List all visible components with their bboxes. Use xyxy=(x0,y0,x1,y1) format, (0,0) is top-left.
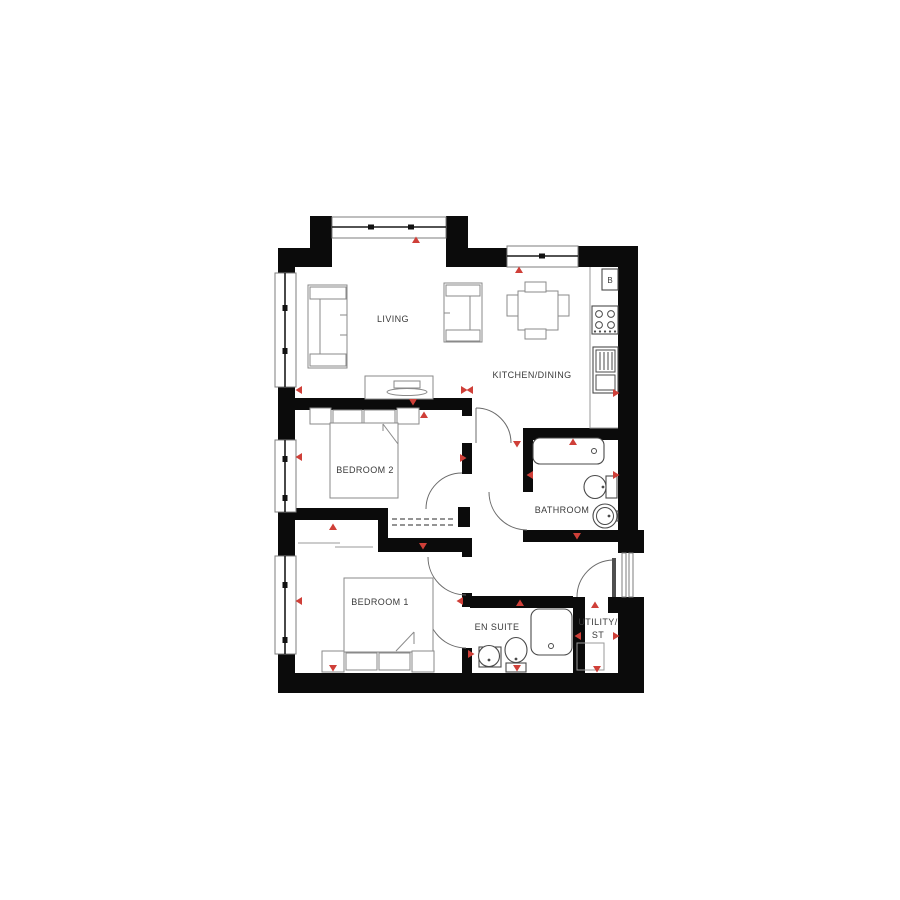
floor-plan-page: LIVING B xyxy=(0,0,900,900)
utility-label-line2: ST xyxy=(592,630,604,640)
bedroom2-window xyxy=(275,440,296,512)
room-bathroom: BATHROOM xyxy=(533,438,618,528)
ensuite-label: EN SUITE xyxy=(475,622,520,632)
bedroom1-label: BEDROOM 1 xyxy=(351,597,409,607)
bath-icon xyxy=(533,438,604,464)
kitchen-sink-icon xyxy=(593,347,618,393)
bedroom2-label: BEDROOM 2 xyxy=(336,465,394,475)
kitchen-hall-door-swing xyxy=(476,408,511,443)
wardrobe-sliding-doors xyxy=(298,543,373,547)
hob-icon xyxy=(592,306,618,334)
dimension-marker-icon xyxy=(593,666,601,673)
dimension-marker-icon xyxy=(461,386,468,394)
bedroom2-door-swing xyxy=(426,473,462,509)
boiler-label: B xyxy=(607,276,612,285)
shower-icon xyxy=(531,609,572,655)
tv-unit xyxy=(365,376,433,399)
floor-plan: LIVING B xyxy=(0,0,900,900)
basin-icon xyxy=(593,504,618,528)
dimension-marker-icon xyxy=(329,524,337,531)
entrance-door-frame xyxy=(622,553,626,597)
living-side-window xyxy=(275,273,296,387)
bathroom-door-swing xyxy=(489,492,527,530)
entrance-door-swing xyxy=(577,560,613,597)
dimension-marker-icon xyxy=(591,602,599,609)
dimension-marker-icon xyxy=(420,412,428,419)
utility-label-line1: UTILITY/ xyxy=(578,617,617,627)
bedroom1-window xyxy=(275,556,296,654)
dining-table-4-chairs xyxy=(507,282,569,339)
room-ensuite: EN SUITE xyxy=(475,609,572,672)
dimension-marker-icon xyxy=(457,597,464,605)
sofa-3-seat xyxy=(308,285,347,368)
room-kitchen-dining: B KITCHEN/DINING xyxy=(492,267,618,428)
ensuite-door-swing xyxy=(428,610,466,648)
entrance-door-leaf xyxy=(612,558,616,597)
overhead-storage-dashed xyxy=(392,519,454,525)
bed-bedroom2 xyxy=(310,408,419,498)
dimension-marker-icon xyxy=(513,441,521,448)
room-bedroom2: BEDROOM 2 xyxy=(310,408,419,498)
room-living: LIVING xyxy=(308,283,482,399)
kitchen-window xyxy=(507,246,578,267)
room-bedroom1: BEDROOM 1 xyxy=(322,578,434,672)
bed-bedroom1 xyxy=(322,578,434,672)
living-bay-window xyxy=(332,217,446,238)
kitchen-dining-label: KITCHEN/DINING xyxy=(492,370,571,380)
toilet-icon xyxy=(584,476,617,499)
ensuite-basin-icon xyxy=(479,646,502,668)
bathroom-label: BATHROOM xyxy=(535,505,590,515)
living-label: LIVING xyxy=(377,314,409,324)
sofa-2-seat xyxy=(444,283,482,342)
bedroom1-door-swing xyxy=(428,557,466,595)
entrance-door-frame-outer xyxy=(629,553,633,597)
boiler: B xyxy=(602,269,618,290)
